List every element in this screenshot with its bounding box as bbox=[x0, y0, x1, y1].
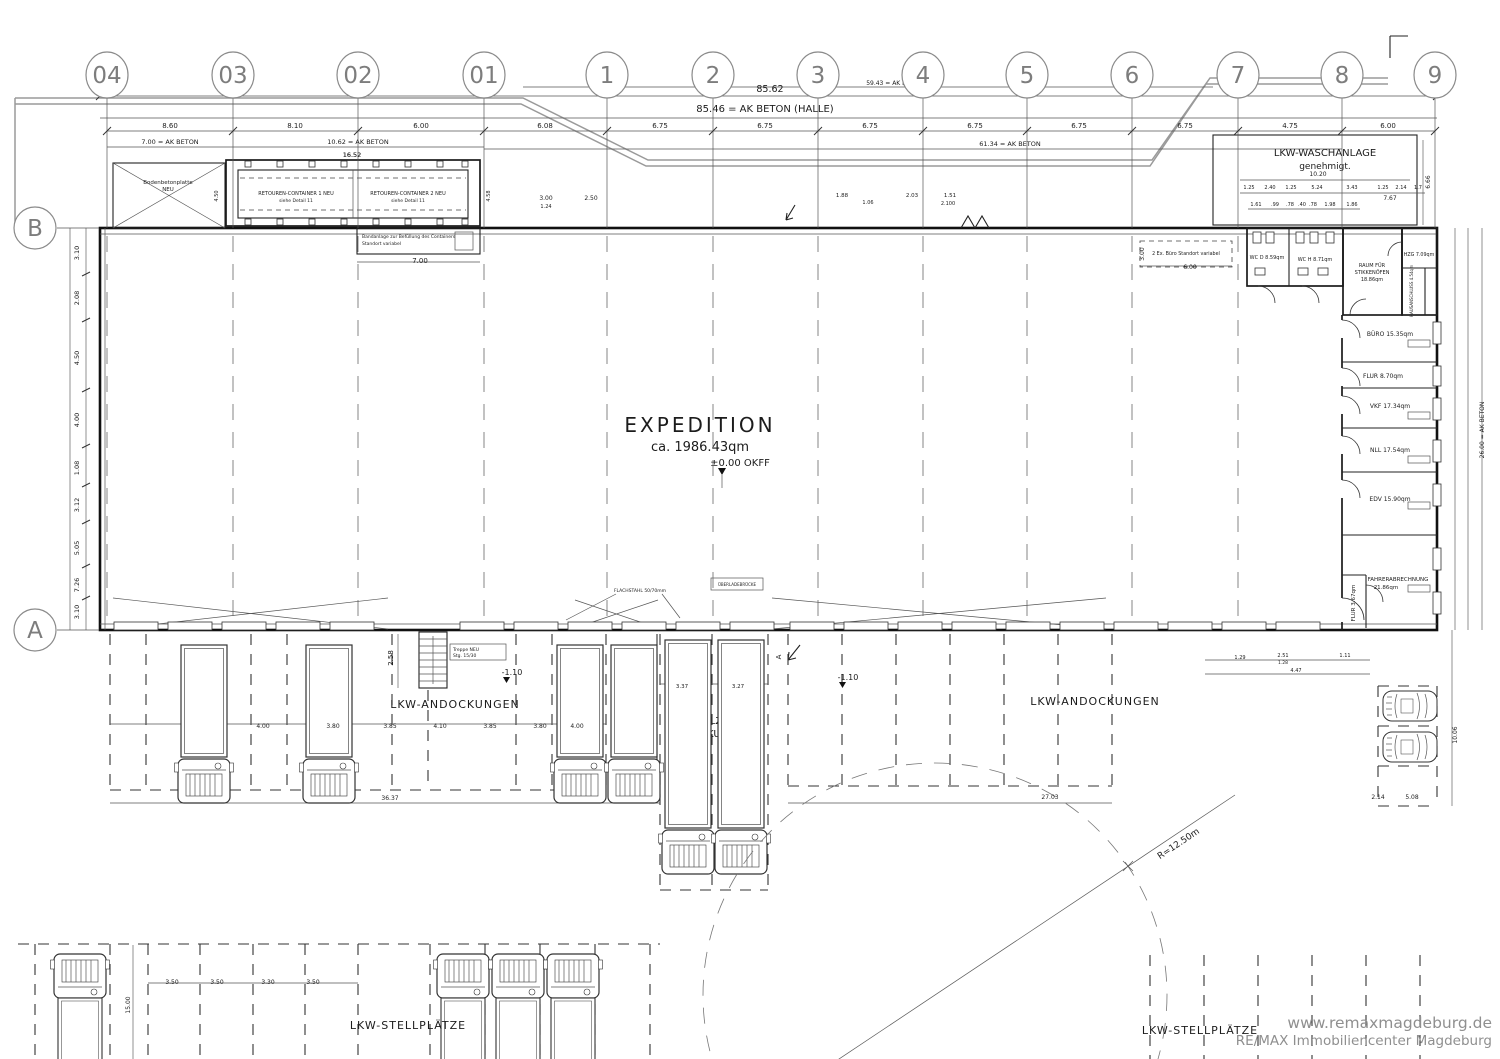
dim-label: 4.00 bbox=[256, 723, 270, 730]
turning-circle: R=12.50m bbox=[703, 763, 1235, 1059]
container-1-note: siehe Detail 11 bbox=[279, 198, 313, 204]
dim-label: 3.80 bbox=[533, 723, 547, 730]
dim-label: 3.10 bbox=[73, 605, 81, 619]
bodenplatte-label-2: NEU bbox=[162, 187, 174, 193]
dim-label: 4.50 bbox=[214, 190, 220, 201]
hall-name: EXPEDITION bbox=[624, 413, 775, 437]
bandanlage-label-2: Standort variabel bbox=[362, 241, 401, 247]
room-wc-h: WC H 8.71qm bbox=[1298, 257, 1333, 263]
dim-label: 36.37 bbox=[381, 795, 398, 802]
dim-label: 1.88 bbox=[836, 193, 849, 199]
room-buero: BÜRO 15.35qm bbox=[1367, 331, 1413, 338]
grid-col-label: 5 bbox=[1020, 63, 1035, 89]
grid-col-label: 3 bbox=[811, 63, 826, 89]
bandanlage-label-1: Bandanlage zur Befüllung des Containers bbox=[362, 234, 456, 240]
dim-label: 3.50 bbox=[210, 979, 224, 986]
grid-col-7: 7 bbox=[1217, 52, 1259, 622]
dim-label: 3.10 bbox=[73, 246, 81, 260]
dim-label: 26.00 = AK BETON bbox=[1479, 402, 1486, 459]
dim-label: 2.14 bbox=[1395, 185, 1406, 191]
grid-col-label: 9 bbox=[1428, 63, 1443, 89]
grid-col-label: 2 bbox=[706, 63, 721, 89]
dim-label: 10.06 bbox=[1452, 726, 1459, 743]
dim-label: 1.29 bbox=[1234, 655, 1245, 661]
dim-label: 2.51 bbox=[1277, 653, 1288, 659]
room-flur1: FLUR 8.70qm bbox=[1363, 373, 1403, 380]
hall-area: ca. 1986.43qm bbox=[651, 440, 749, 455]
truck-icon bbox=[659, 640, 718, 874]
grid-col-1: 1 bbox=[586, 52, 628, 622]
dim-label: .78 bbox=[1309, 202, 1317, 208]
container-1-label: RETOUREN-CONTAINER 1 NEU bbox=[258, 191, 334, 197]
grid-row-label: A bbox=[27, 618, 43, 644]
dim-label: 6.00 bbox=[1380, 122, 1396, 130]
dim-label: 6.00 bbox=[413, 122, 429, 130]
container-2-label: RETOUREN-CONTAINER 2 NEU bbox=[370, 191, 446, 197]
dim-label: 15.00 bbox=[125, 996, 132, 1013]
dim-total: 85.62 bbox=[756, 84, 783, 95]
truck-icon bbox=[605, 645, 664, 803]
hall-labels: EXPEDITION ca. 1986.43qm ±0.00 OKFF bbox=[624, 413, 775, 488]
retouren-container: RETOUREN-CONTAINER 1 NEU siehe Detail 11… bbox=[226, 151, 480, 226]
grid-col-5: 5 bbox=[1006, 52, 1048, 622]
dim-beton-left: 7.00 = AK BETON bbox=[141, 138, 198, 146]
grid-col-label: 6 bbox=[1125, 63, 1140, 89]
dock-doors bbox=[114, 622, 1320, 630]
dim-label: 2.03 bbox=[906, 193, 919, 199]
treppe-label-2: Stg. 15/30 bbox=[453, 653, 476, 659]
grid-col-label: 03 bbox=[218, 63, 247, 89]
room-fahrerabrechnung-1: FAHRERABRECHNUNG bbox=[1368, 577, 1429, 583]
grid-col-label: 04 bbox=[92, 63, 121, 89]
side-dimension-chains bbox=[70, 228, 1482, 1059]
car-icon bbox=[1383, 732, 1437, 762]
grid-col-3: 3 bbox=[797, 52, 839, 622]
room-hzg: HZG 7.09qm bbox=[1404, 252, 1435, 258]
parking-left: LKW-STELLPLÄTZE bbox=[18, 944, 660, 1059]
office-wing: WC D 8.59qm WC H 8.71qm RAUM FÜR STIKKEN… bbox=[1247, 228, 1441, 630]
dim-label: 3.00 bbox=[1139, 247, 1146, 261]
dim-label: 6.75 bbox=[757, 122, 773, 130]
room-flur2: FLUR 3.67qm bbox=[1351, 585, 1357, 622]
grid-col-03: 03 bbox=[212, 52, 254, 622]
dim-total-beton: 85.46 = AK BETON (HALLE) bbox=[696, 104, 833, 115]
dim-label: 7.67 bbox=[1383, 195, 1397, 202]
bodenplatte-label-1: Bodenbetonplatte bbox=[143, 180, 193, 186]
car-icon bbox=[1383, 691, 1437, 721]
room-fahrerabrechnung-2: 21.86qm bbox=[1374, 585, 1399, 591]
grid-col-2: 2 bbox=[692, 52, 734, 622]
grid-col-4: 4 bbox=[902, 52, 944, 622]
dim-label: 3.85 bbox=[483, 723, 497, 730]
floor-plan-drawing: 85.62 85.46 = AK BETON (HALLE) 7.00 = AK… bbox=[0, 0, 1500, 1059]
dim-label: 3.00 bbox=[539, 195, 553, 202]
grid-col-label: 8 bbox=[1335, 63, 1350, 89]
truck-icon bbox=[544, 954, 603, 1059]
bodenbetonplatte: Bodenbetonplatte NEU bbox=[113, 163, 225, 228]
dim-label: 1.25 bbox=[1243, 185, 1254, 191]
zone-stellplaetze-left: LKW-STELLPLÄTZE bbox=[350, 1019, 466, 1032]
dim-label: 7.26 bbox=[73, 578, 81, 592]
dim-label: .40 bbox=[1298, 202, 1306, 208]
dim-label: 3.37 bbox=[676, 684, 689, 690]
dim-label: 4.75 bbox=[1282, 122, 1298, 130]
dim-label: 1.51 bbox=[944, 193, 956, 199]
dim-label: 1.25 bbox=[1285, 185, 1296, 191]
waschanlage-label-1: LKW-WASCHANLAGE bbox=[1274, 148, 1376, 159]
dim-label: 2.58 bbox=[387, 650, 395, 666]
dim-label: 1.61 bbox=[1250, 202, 1261, 208]
dim-label: 4.50 bbox=[73, 351, 81, 365]
dim-label: 8.10 bbox=[287, 122, 303, 130]
dim-label: 16.52 bbox=[343, 151, 362, 159]
dim-label: 2.100 bbox=[941, 201, 955, 207]
room-hausanschluss: HAUSANSCHLUSS 4.54qm bbox=[1409, 265, 1414, 317]
hall-level: ±0.00 OKFF bbox=[710, 458, 770, 469]
grid-col-label: 4 bbox=[916, 63, 931, 89]
dim-label: 2.14 bbox=[1371, 794, 1385, 801]
lkw-bays-right bbox=[788, 634, 1112, 803]
grid-col-label: 02 bbox=[343, 63, 372, 89]
dim-label: 1.06 bbox=[862, 200, 873, 206]
dim-label: 1.28 bbox=[1278, 660, 1288, 666]
grid-col-6: 6 bbox=[1111, 52, 1153, 622]
grid-col-label: 7 bbox=[1231, 63, 1246, 89]
flachstahl-label: FLACHSTAHL 50/70mm bbox=[614, 588, 666, 594]
dim-beton-right: 61.34 = AK BETON bbox=[979, 140, 1041, 148]
grid-col-9: 9 bbox=[1414, 52, 1456, 228]
room-vkf: VKF 17.34qm bbox=[1370, 403, 1410, 410]
dim-label: 5.08 bbox=[1405, 794, 1419, 801]
watermark: www.remaxmagdeburg.de RE/MAX Immobilienc… bbox=[1236, 1014, 1492, 1049]
dim-label: 4.47 bbox=[1290, 668, 1301, 674]
dock-area: ÜBERLADEBRÜCKE FLACHSTAHL 50/70mm bbox=[110, 578, 1437, 890]
dim-label: 8.60 bbox=[162, 122, 178, 130]
dim-label: 10.20 bbox=[1309, 171, 1326, 178]
dim-label: 6.66 bbox=[1425, 175, 1432, 189]
stairs: Treppe NEU Stg. 15/30 bbox=[398, 632, 506, 688]
dim-label: 1.25 bbox=[1377, 185, 1388, 191]
container-2-note: siehe Detail 11 bbox=[391, 198, 425, 204]
grid-col-label: 01 bbox=[469, 63, 498, 89]
dim-label: 6.75 bbox=[862, 122, 878, 130]
dim-label: 3.12 bbox=[73, 498, 81, 512]
dim-label: 5.05 bbox=[73, 541, 81, 555]
dim-label: 2.08 bbox=[73, 291, 81, 305]
ueberladebruecke-label: ÜBERLADEBRÜCKE bbox=[718, 582, 757, 587]
watermark-company: RE/MAX Immobiliencenter Magdeburg bbox=[1236, 1033, 1492, 1049]
grid-col-label: 1 bbox=[600, 63, 615, 89]
truck-icon bbox=[489, 954, 548, 1059]
dim-label: 5.24 bbox=[1311, 185, 1322, 191]
buero-variabel-label: 2 Ex. Büro Standort variabel bbox=[1152, 251, 1220, 257]
dim-label: 1.86 bbox=[1346, 202, 1357, 208]
dim-label: 1.98 bbox=[1324, 202, 1335, 208]
room-wc-d: WC D 8.59qm bbox=[1250, 255, 1285, 261]
truck-icon bbox=[712, 640, 771, 874]
dim-label: 27.03 bbox=[1041, 794, 1058, 801]
level-110a: -1.10 bbox=[502, 668, 523, 677]
treppe-label-1: Treppe NEU bbox=[452, 647, 479, 653]
section-label: A bbox=[775, 654, 783, 659]
room-stikken-3: 18.86qm bbox=[1361, 277, 1383, 283]
grid-row-label: B bbox=[27, 216, 43, 242]
truck-icon bbox=[434, 954, 493, 1059]
dim-label: 3.50 bbox=[306, 979, 320, 986]
dim-label: 6.75 bbox=[1177, 122, 1193, 130]
dim-label: 4.00 bbox=[73, 413, 81, 427]
dim-label: 3.80 bbox=[326, 723, 340, 730]
dim-label: 4.58 bbox=[486, 190, 492, 201]
grid-col-04: 04 bbox=[86, 52, 128, 622]
zone-lkw-andockungen-right: LKW-ANDOCKUNGEN bbox=[1030, 695, 1160, 708]
grid-col-01: 01 bbox=[463, 52, 505, 622]
dim-label: 6.08 bbox=[537, 122, 553, 130]
zone-lkw-andockungen-left: LKW-ANDOCKUNGEN bbox=[390, 698, 520, 711]
dim-label: 3.85 bbox=[383, 723, 397, 730]
level-110b: -1.10 bbox=[838, 673, 859, 682]
dim-label: 3.43 bbox=[1346, 185, 1357, 191]
dim-label: 7.00 bbox=[412, 257, 428, 265]
dim-label: 6.75 bbox=[652, 122, 668, 130]
watermark-url: www.remaxmagdeburg.de bbox=[1287, 1014, 1492, 1032]
floor-plan-page: 85.62 85.46 = AK BETON (HALLE) 7.00 = AK… bbox=[0, 0, 1500, 1059]
dim-label: 1.11 bbox=[1339, 653, 1350, 659]
dim-label: 3.30 bbox=[261, 979, 275, 986]
dim-label: 6.75 bbox=[967, 122, 983, 130]
dim-label: 1.08 bbox=[73, 461, 81, 475]
dim-label: 4.10 bbox=[433, 723, 447, 730]
dim-label: 6.00 bbox=[1183, 264, 1197, 271]
dim-label: 3.27 bbox=[732, 684, 745, 690]
room-edv: EDV 15.90qm bbox=[1369, 496, 1410, 503]
room-stikken-2: STIKKENÖFEN bbox=[1355, 269, 1390, 276]
dim-label: 3.50 bbox=[165, 979, 179, 986]
grid-axes: 04030201123456789BA bbox=[14, 52, 1456, 651]
lkw-waschanlage: LKW-WASCHANLAGE genehmigt. bbox=[1213, 135, 1425, 225]
dim-label: .78 bbox=[1286, 202, 1294, 208]
dim-label: 1.24 bbox=[540, 204, 551, 210]
dim-label: .99 bbox=[1271, 202, 1279, 208]
dim-label: 6.75 bbox=[1071, 122, 1087, 130]
dim-label: 2.40 bbox=[1264, 185, 1275, 191]
dim-label: 4.00 bbox=[570, 723, 584, 730]
dim-label: 2.50 bbox=[584, 195, 598, 202]
truck-icon bbox=[175, 645, 234, 803]
room-nll: NLL 17.54qm bbox=[1370, 447, 1410, 454]
dim-label: 1.7 bbox=[1414, 185, 1422, 191]
room-stikken-1: RAUM FÜR bbox=[1359, 262, 1386, 269]
truck-icon bbox=[51, 954, 110, 1059]
